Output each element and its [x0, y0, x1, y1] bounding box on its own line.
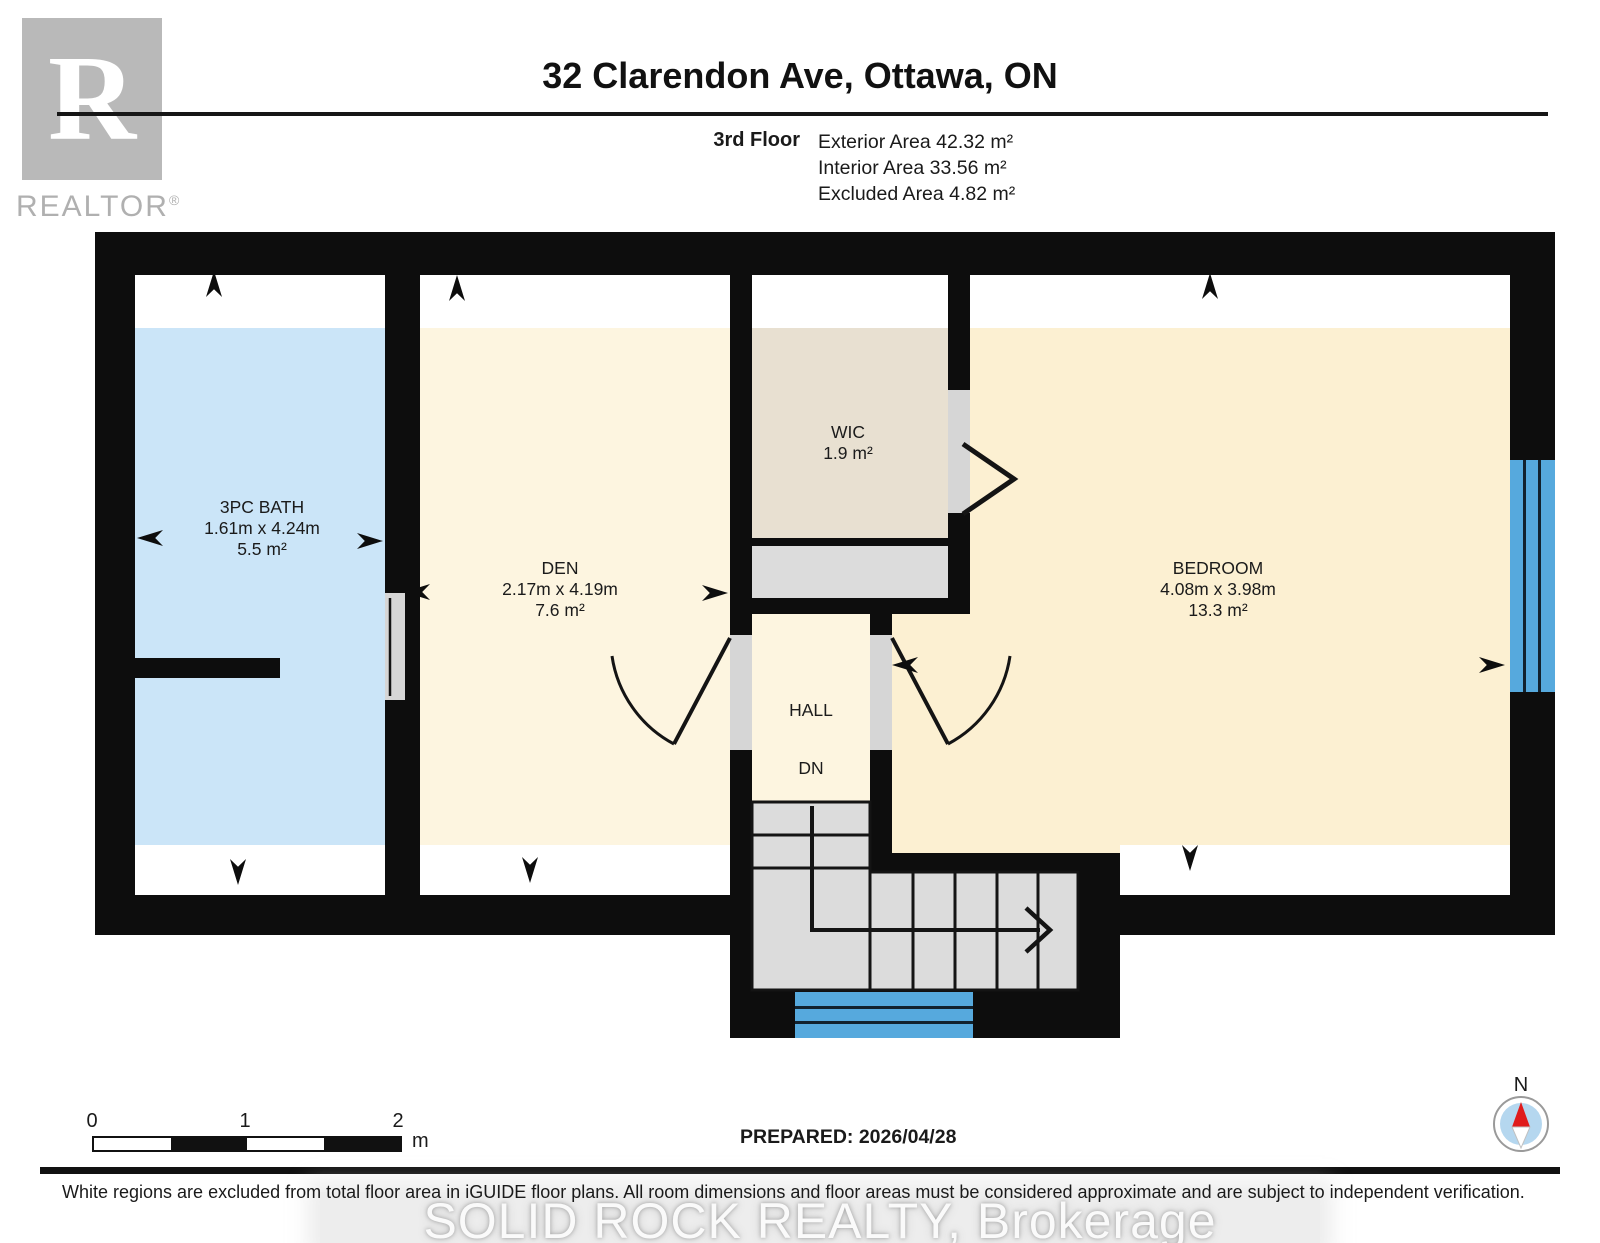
wall-top: [95, 232, 1555, 275]
bath-excluded-bottom: [135, 845, 385, 895]
page-title: 32 Clarendon Ave, Ottawa, ON: [0, 55, 1600, 97]
hall-label: HALL: [761, 700, 861, 721]
floor-plan-page: R REALTOR® 32 Clarendon Ave, Ottawa, ON …: [0, 0, 1600, 1243]
room-name: DEN: [460, 558, 660, 579]
room-area: 5.5 m²: [162, 539, 362, 560]
window-mullion: [1523, 460, 1526, 692]
room-name: 3PC BATH: [162, 497, 362, 518]
stairs-lower-flight: [870, 872, 1078, 990]
scale-seg: [94, 1138, 171, 1150]
scale-unit: m: [412, 1130, 429, 1153]
bedroom-excluded-bottom: [1120, 845, 1510, 895]
stairwell-window: [795, 992, 973, 1038]
den-excluded-top: [420, 275, 730, 328]
bath-excluded-top: [135, 275, 385, 328]
wall-segment: [752, 538, 948, 546]
prepared-date: PREPARED: 2026/04/28: [740, 1126, 956, 1149]
wall-left: [95, 232, 135, 935]
scale-tick-1: 1: [233, 1110, 257, 1133]
disclaimer-text: White regions are excluded from total fl…: [62, 1182, 1562, 1203]
wall-bottom-left: [95, 895, 730, 935]
bedroom-label: BEDROOM 4.08m x 3.98m 13.3 m²: [1118, 558, 1318, 621]
room-area: 13.3 m²: [1118, 600, 1318, 621]
wall-stairwell-north: [892, 853, 1120, 872]
bath-pocket-door: [385, 593, 405, 700]
scale-tick-0: 0: [80, 1110, 104, 1133]
scale-tick-2: 2: [386, 1110, 410, 1133]
bedroom-floor-west: [892, 614, 1120, 853]
hall-bedroom-door-jamb: [870, 635, 892, 750]
realtor-logo: R: [22, 18, 162, 180]
excluded-area: Excluded Area 4.82 m²: [818, 181, 1015, 207]
floor-label: 3rd Floor: [610, 129, 800, 152]
wall-bath-den: [385, 275, 420, 895]
realtor-logo-wordmark: REALTOR®: [16, 190, 186, 224]
realtor-logo-text: REALTOR: [16, 190, 169, 223]
scale-seg: [324, 1138, 401, 1150]
stairs-direction: DN: [761, 758, 861, 779]
scale-bar: [92, 1136, 402, 1152]
window-mullion: [795, 1021, 973, 1024]
footer-divider: [40, 1167, 1560, 1174]
room-dims: 1.61m x 4.24m: [162, 518, 362, 539]
room-area: 7.6 m²: [460, 600, 660, 621]
den-label: DEN 2.17m x 4.19m 7.6 m²: [460, 558, 660, 621]
wall-wic-east-upper: [948, 275, 970, 390]
bedroom-excluded-top: [970, 275, 1510, 328]
exterior-area: Exterior Area 42.32 m²: [818, 129, 1015, 155]
area-summary: Exterior Area 42.32 m² Interior Area 33.…: [818, 129, 1015, 207]
window-mullion: [1538, 460, 1541, 692]
wall-bottom-right: [1120, 895, 1555, 935]
compass-icon: [1491, 1094, 1551, 1154]
room-name: BEDROOM: [1118, 558, 1318, 579]
title-divider: [57, 112, 1548, 116]
wall-bath-stub: [135, 658, 280, 678]
closet-shelf: [752, 546, 948, 598]
scale-seg: [171, 1138, 248, 1150]
room-dims: 2.17m x 4.19m: [460, 579, 660, 600]
wic-excluded-top: [752, 275, 948, 328]
room-area: 1.9 m²: [768, 443, 928, 464]
bath-label: 3PC BATH 1.61m x 4.24m 5.5 m²: [162, 497, 362, 560]
interior-area: Interior Area 33.56 m²: [818, 155, 1015, 181]
room-name: WIC: [768, 422, 928, 443]
bath-floor: [135, 328, 385, 845]
wic-door-jamb: [948, 390, 970, 513]
hall-den-door-jamb: [730, 635, 752, 750]
room-name: HALL: [761, 700, 861, 721]
stairs-down-label: DN: [761, 758, 861, 779]
bedroom-window: [1510, 460, 1555, 692]
scale-seg: [247, 1138, 324, 1150]
room-dims: 4.08m x 3.98m: [1118, 579, 1318, 600]
wic-label: WIC 1.9 m²: [768, 422, 928, 464]
registered-mark: ®: [169, 192, 181, 208]
window-mullion: [795, 1006, 973, 1009]
den-excluded-bottom: [420, 845, 730, 895]
stairs-upper-flight: [752, 802, 870, 990]
wall-below-closet: [730, 598, 970, 614]
